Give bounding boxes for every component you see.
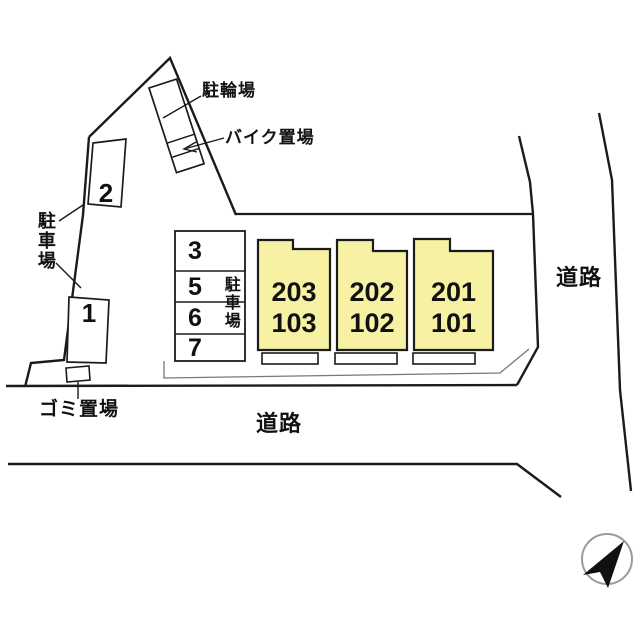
porch-203 (262, 353, 318, 364)
plot-boundary-bottom (6, 385, 517, 386)
plot-boundary-right (517, 136, 538, 385)
parking-space-6-number: 6 (182, 305, 208, 331)
bicycle-parking-rect (149, 79, 204, 173)
porch-201 (413, 353, 475, 364)
road-bottom-far-edge (8, 464, 561, 497)
porch-202 (335, 353, 397, 364)
building-2-units: 202 102 (337, 277, 407, 339)
unit-102: 102 (337, 308, 407, 339)
garbage-box-rect (66, 366, 90, 382)
unit-202: 202 (337, 277, 407, 308)
leader-parking-space-2 (59, 205, 83, 221)
parking-space-7-number: 7 (182, 335, 208, 361)
unit-101: 101 (414, 308, 493, 339)
garbage-area-label: ゴミ置場 (39, 400, 119, 420)
compass-icon (582, 534, 632, 588)
road-right-label: 道路 (556, 266, 602, 289)
road-right-far-edge (599, 113, 631, 491)
unit-103: 103 (258, 308, 330, 339)
parking-table-label: 駐車場 (221, 276, 238, 330)
site-plan: 駐輪場 バイク置場 駐車場 駐車場 ゴミ置場 道路 道路 2 1 3 5 6 7… (0, 0, 640, 640)
bicycle-parking-label: 駐輪場 (202, 82, 256, 100)
building-3-units: 201 101 (414, 277, 493, 339)
unit-203: 203 (258, 277, 330, 308)
road-bottom-label: 道路 (256, 412, 302, 435)
parking-space-5-number: 5 (182, 274, 208, 300)
parking-side-label: 駐車場 (36, 211, 55, 271)
parking-space-2-number: 2 (94, 180, 118, 207)
parking-space-3-number: 3 (182, 238, 208, 264)
parking-space-1-number: 1 (77, 300, 101, 327)
bicycle-bike-area (149, 79, 204, 173)
building-1-units: 203 103 (258, 277, 330, 339)
unit-201: 201 (414, 277, 493, 308)
motorcycle-parking-label: バイク置場 (225, 129, 315, 147)
